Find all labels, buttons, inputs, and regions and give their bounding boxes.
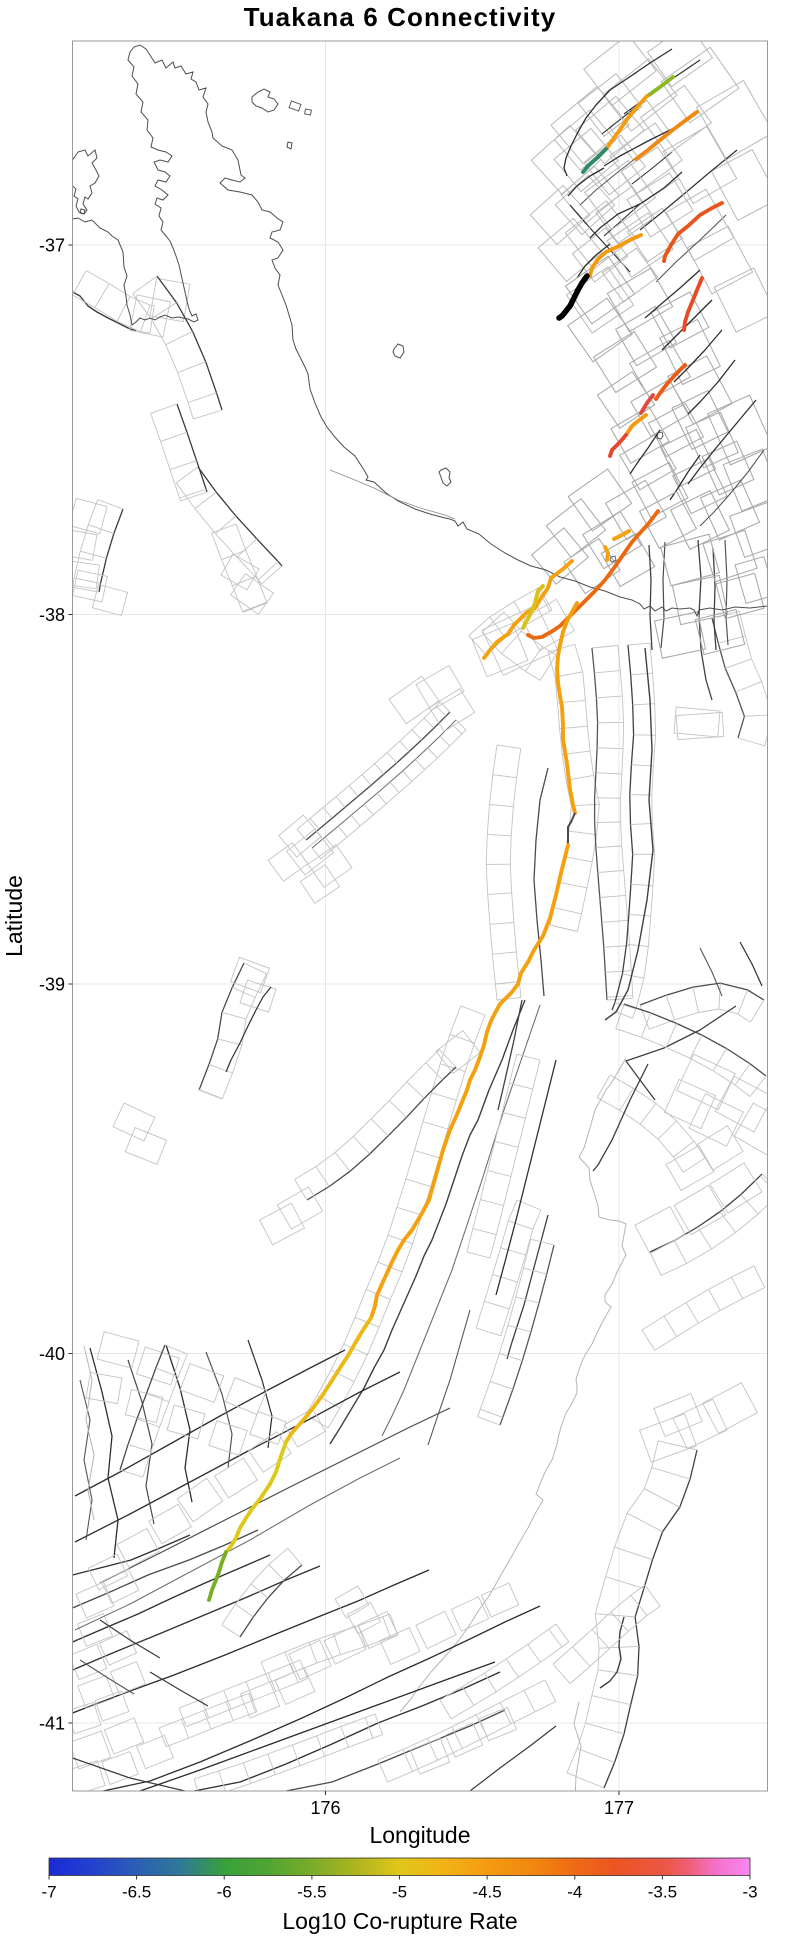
svg-text:176: 176	[310, 1798, 340, 1818]
svg-text:Latitude: Latitude	[1, 875, 27, 957]
svg-text:-6: -6	[217, 1883, 232, 1902]
svg-text:Log10 Co-rupture Rate: Log10 Co-rupture Rate	[282, 1908, 517, 1934]
svg-text:-6.5: -6.5	[122, 1883, 151, 1902]
svg-text:-3.5: -3.5	[648, 1883, 677, 1902]
svg-text:-7: -7	[41, 1883, 56, 1902]
svg-text:-5: -5	[392, 1883, 407, 1902]
svg-text:-4.5: -4.5	[472, 1883, 501, 1902]
svg-text:177: 177	[604, 1798, 634, 1818]
svg-text:-37: -37	[39, 236, 65, 256]
svg-text:-39: -39	[39, 975, 65, 995]
svg-text:-5.5: -5.5	[297, 1883, 326, 1902]
svg-text:Longitude: Longitude	[369, 1822, 470, 1848]
svg-text:-3: -3	[742, 1883, 757, 1902]
svg-text:-4: -4	[567, 1883, 582, 1902]
svg-text:Tuakana 6 Connectivity: Tuakana 6 Connectivity	[244, 2, 557, 32]
svg-text:-41: -41	[39, 1714, 65, 1734]
svg-text:-40: -40	[39, 1344, 65, 1364]
svg-text:-38: -38	[39, 605, 65, 625]
